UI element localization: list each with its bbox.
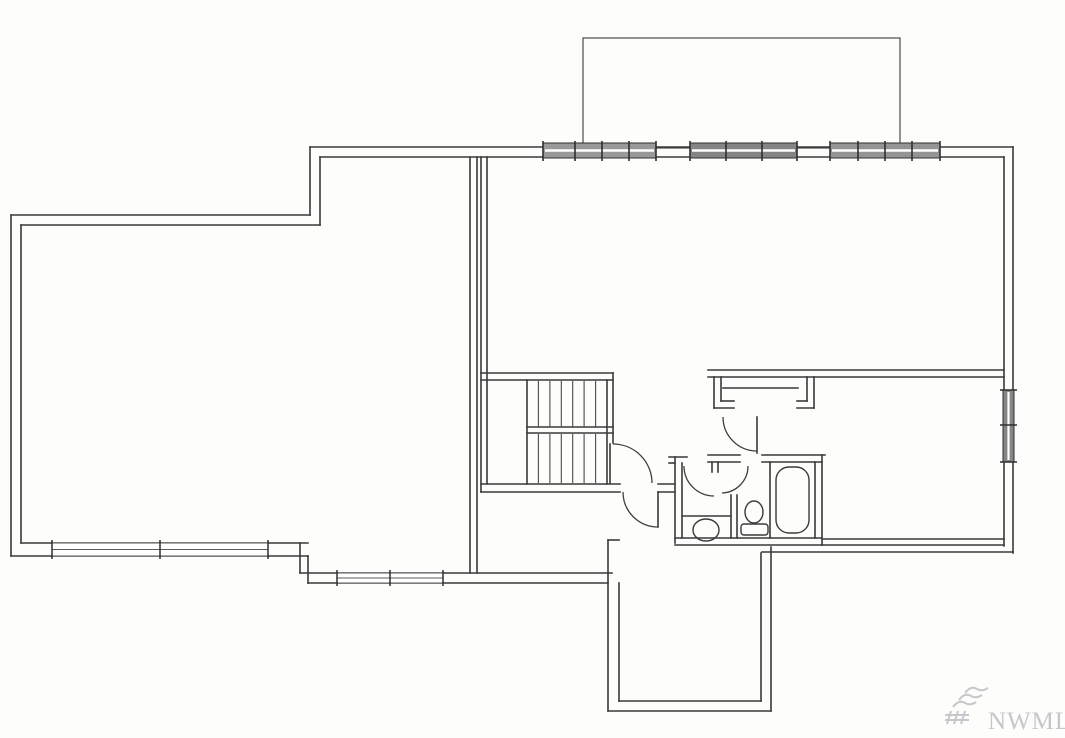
nwmls-logo-stroke	[954, 711, 958, 724]
nwmls-logo-stroke	[947, 711, 951, 724]
door-swing-arc	[613, 444, 652, 483]
nwmls-logo-stroke	[959, 695, 982, 700]
staircase	[538, 381, 595, 483]
floor-plan-page: NWMLS	[0, 0, 1065, 738]
door-swing-arc	[684, 466, 714, 496]
deck-outline	[583, 38, 900, 148]
sink-base	[741, 524, 768, 535]
bathtub-inner	[776, 467, 809, 533]
windows	[52, 141, 1017, 586]
nwmls-logo-stroke	[965, 688, 988, 693]
watermark-text: NWMLS	[988, 708, 1065, 735]
watermark: NWMLS	[945, 688, 1065, 735]
walls	[11, 147, 1013, 711]
door-swing-arc	[623, 492, 658, 527]
door-swing-arc	[722, 466, 748, 493]
door-arcs	[613, 417, 757, 527]
nwmls-logo-stroke	[953, 702, 976, 707]
sink-bowl	[745, 501, 763, 523]
floor-plan: NWMLS	[0, 0, 1065, 738]
bathroom-fixtures	[693, 467, 809, 541]
deck-rect	[583, 38, 900, 148]
nwmls-logo-stroke	[961, 711, 965, 724]
door-swing-arc	[723, 417, 757, 451]
